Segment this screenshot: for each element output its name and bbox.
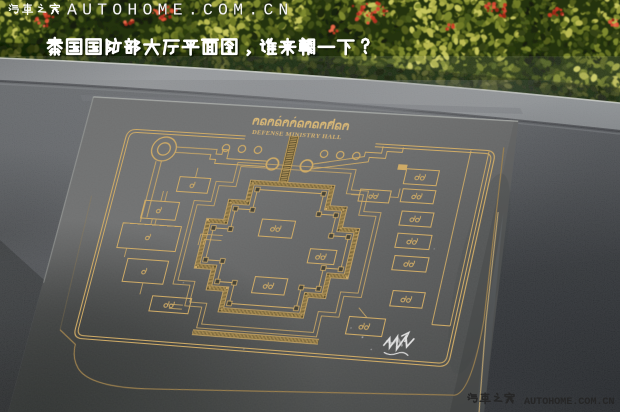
svg-text:AUTOHOME.COM.CN: AUTOHOME.COM.CN <box>524 396 614 408</box>
svg-text:AUTOHOME.COM.CN: AUTOHOME.COM.CN <box>67 1 294 20</box>
